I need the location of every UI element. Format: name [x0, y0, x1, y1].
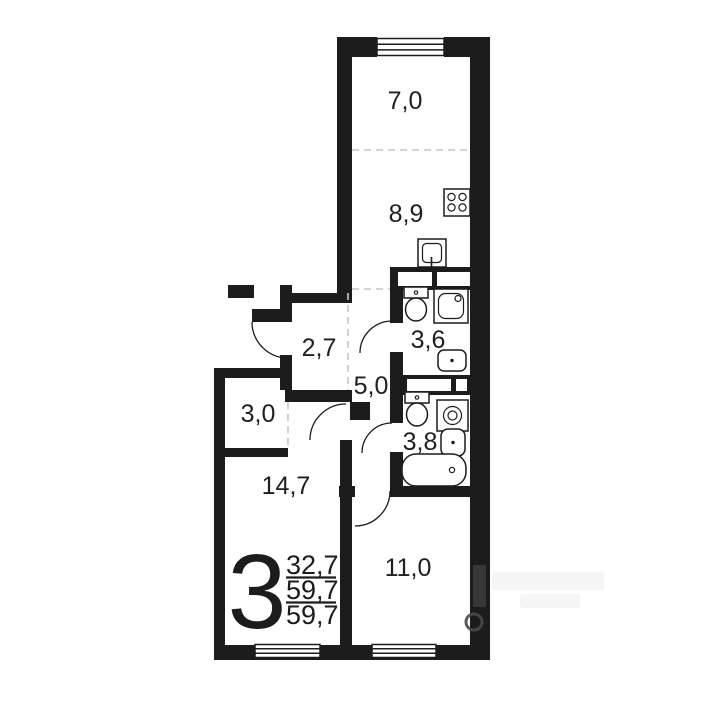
watermark-fragment: [520, 594, 580, 608]
toilet-icon: [405, 392, 429, 426]
washing-machine-icon: [437, 400, 468, 431]
stove-icon: [444, 189, 470, 216]
vent-slot: [456, 379, 467, 391]
wall-left-upper-column: [337, 37, 352, 303]
wall-wardrobe-bottom: [225, 448, 288, 457]
wall-entryhall-top: [283, 293, 352, 303]
shower-icon: [434, 289, 468, 323]
room-label-bathroom-top: 3,6: [411, 326, 446, 354]
wall-rooms-divider: [340, 440, 352, 645]
room-label-balcony: 7,0: [388, 87, 423, 115]
wall-bath-vertical-a: [390, 290, 403, 323]
window-top: [377, 39, 444, 56]
room-label-room-large: 14,7: [262, 472, 311, 500]
room-label-corridor: 5,0: [354, 372, 389, 400]
overall-area: 59,7: [286, 600, 339, 630]
room-label-bathroom-bottom: 3,8: [403, 428, 438, 456]
vent-slot: [398, 272, 432, 286]
watermark-fragment: [492, 572, 604, 590]
vent-slot: [407, 379, 451, 391]
watermark-fragment: [473, 565, 486, 607]
floor-plan-svg: 7,0 8,9 3,6 2,7 5,0 3,8 3,0 14,7 11,0 3 …: [0, 0, 701, 701]
toilet-icon: [404, 287, 428, 321]
wall-pilaster: [350, 402, 370, 420]
room-label-wardrobe: 3,0: [241, 400, 276, 428]
bathtub-icon: [402, 454, 466, 486]
wall-entry-outer: [228, 285, 254, 298]
floor-plan-canvas: 7,0 8,9 3,6 2,7 5,0 3,8 3,0 14,7 11,0 3 …: [0, 0, 701, 701]
room-label-kitchen: 8,9: [389, 200, 424, 228]
wall-bath-bottom: [390, 486, 470, 497]
room-small-door-arc: [355, 491, 390, 526]
entry-door-leaf: [252, 309, 292, 322]
kitchen-sink-icon: [418, 239, 446, 268]
rooms-count: 3: [228, 533, 287, 651]
room-large-door-arc: [310, 404, 346, 440]
bathroom-bottom-door-arc: [362, 423, 392, 453]
wall-left-outer: [214, 368, 225, 660]
bathroom-top-door-arc: [360, 321, 392, 353]
entry-door-arc: [252, 322, 288, 358]
vent-slot: [437, 272, 470, 286]
washbasin-icon: [441, 429, 465, 456]
room-label-room-small: 11,0: [385, 554, 432, 582]
apartment-summary: 3 32,7 59,7 59,7: [228, 533, 339, 651]
wall-entryhall-bottom: [285, 390, 352, 402]
room-label-entry-hall: 2,7: [302, 334, 337, 362]
window-bottom-right: [372, 645, 436, 658]
